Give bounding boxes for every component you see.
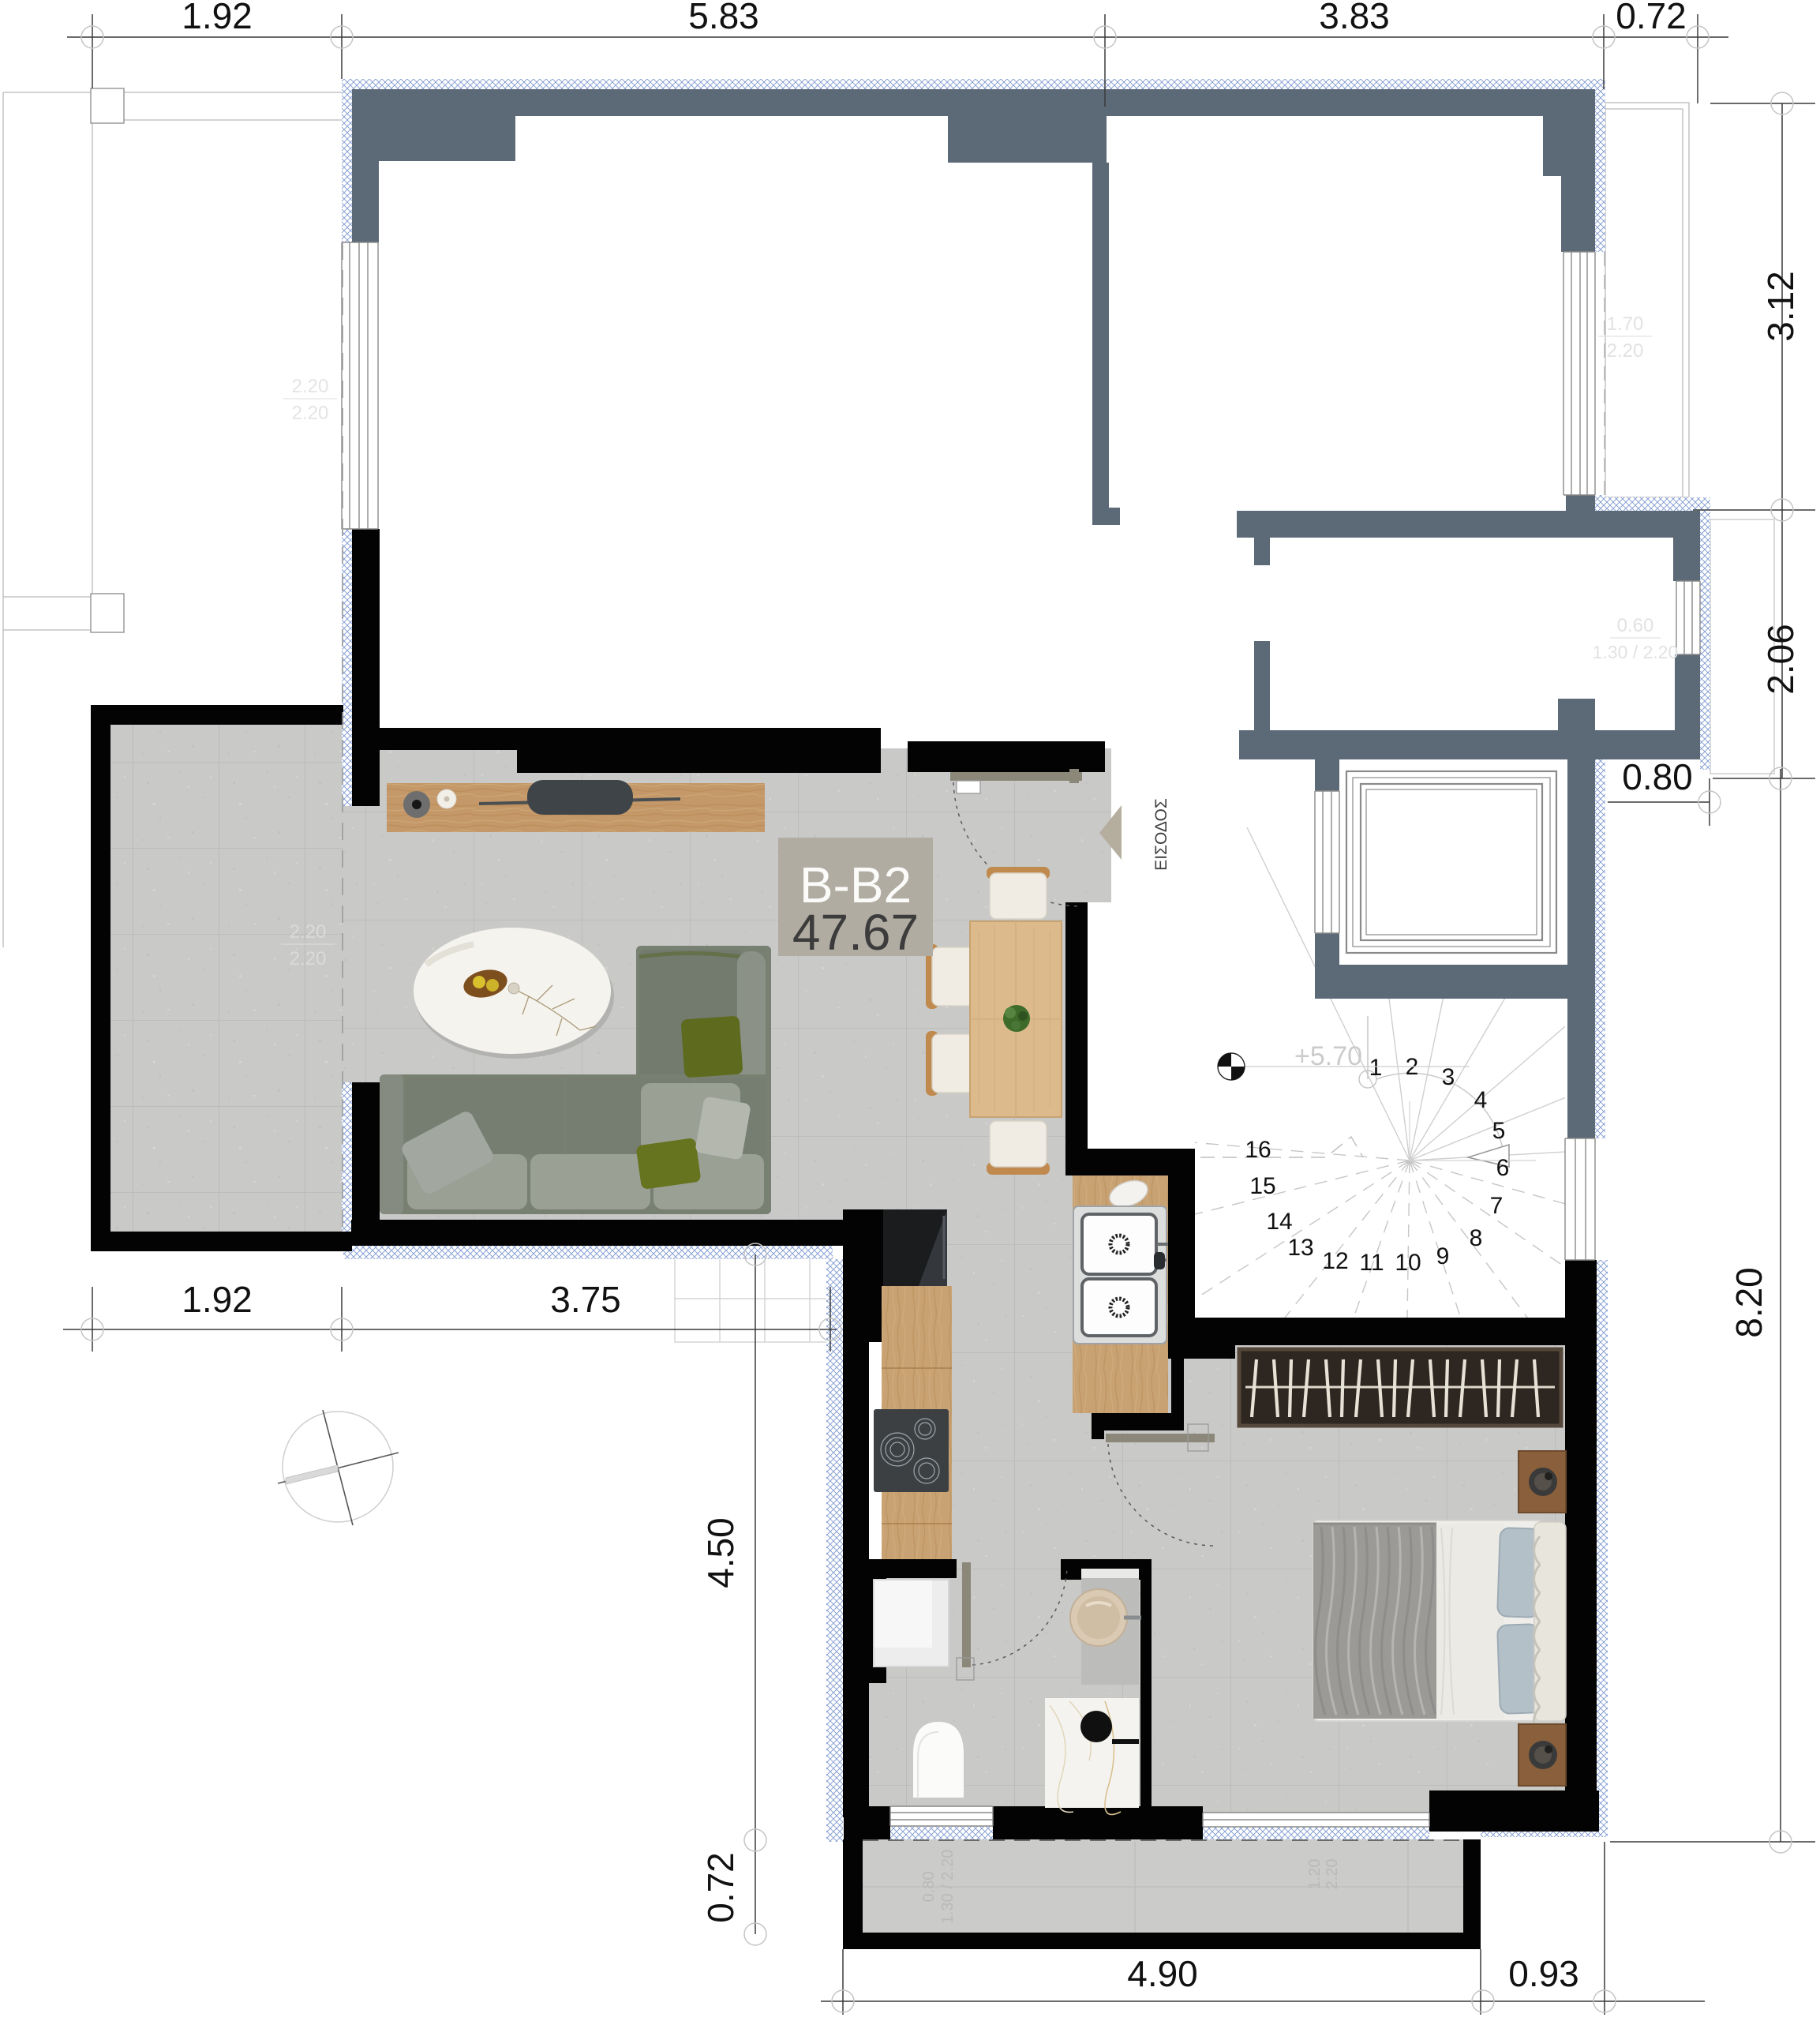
svg-text:15: 15 <box>1249 1173 1275 1199</box>
svg-text:2.20: 2.20 <box>1607 340 1644 362</box>
svg-text:12: 12 <box>1322 1248 1348 1274</box>
svg-text:1.92: 1.92 <box>182 1279 253 1320</box>
svg-text:2.20: 2.20 <box>292 403 329 424</box>
svg-text:0.80: 0.80 <box>920 1872 938 1903</box>
svg-text:2.20: 2.20 <box>292 376 329 397</box>
svg-text:5.83: 5.83 <box>688 0 759 36</box>
svg-text:0.93: 0.93 <box>1508 1953 1579 1994</box>
svg-text:3.83: 3.83 <box>1319 0 1390 36</box>
svg-text:4.90: 4.90 <box>1127 1953 1198 1994</box>
svg-text:1: 1 <box>1369 1055 1383 1081</box>
svg-text:2.20: 2.20 <box>290 948 327 969</box>
svg-text:8.20: 8.20 <box>1728 1267 1769 1338</box>
svg-text:0.80: 0.80 <box>1622 756 1693 797</box>
svg-text:1.92: 1.92 <box>182 0 253 36</box>
svg-text:1.20: 1.20 <box>1306 1859 1324 1890</box>
svg-text:13: 13 <box>1287 1235 1313 1261</box>
svg-text:11: 11 <box>1359 1250 1384 1276</box>
svg-text:1.70: 1.70 <box>1607 313 1644 335</box>
svg-text:5: 5 <box>1492 1118 1506 1144</box>
svg-text:47.67: 47.67 <box>792 904 919 961</box>
svg-text:0.72: 0.72 <box>1616 0 1687 36</box>
svg-text:2.20: 2.20 <box>290 921 327 943</box>
svg-text:4.50: 4.50 <box>700 1517 741 1588</box>
svg-text:2.20: 2.20 <box>1324 1859 1341 1890</box>
svg-text:3.75: 3.75 <box>550 1279 621 1320</box>
svg-text:9: 9 <box>1436 1243 1450 1269</box>
svg-text:1.30 / 2.20: 1.30 / 2.20 <box>1593 642 1679 662</box>
svg-text:8: 8 <box>1470 1225 1483 1251</box>
svg-text:7: 7 <box>1490 1193 1504 1219</box>
svg-text:14: 14 <box>1266 1209 1292 1235</box>
svg-text:0.60: 0.60 <box>1617 615 1654 636</box>
svg-text:2.06: 2.06 <box>1760 624 1801 695</box>
svg-text:+5.70: +5.70 <box>1294 1041 1362 1071</box>
svg-text:10: 10 <box>1395 1250 1421 1276</box>
svg-text:3.12: 3.12 <box>1760 271 1801 342</box>
svg-text:4: 4 <box>1474 1087 1488 1113</box>
svg-text:3: 3 <box>1442 1064 1455 1090</box>
svg-text:0.72: 0.72 <box>700 1852 741 1923</box>
svg-text:1.30 / 2.20: 1.30 / 2.20 <box>939 1850 957 1925</box>
svg-text:ΕΙΣΟΔΟΣ: ΕΙΣΟΔΟΣ <box>1152 798 1170 871</box>
svg-text:6: 6 <box>1496 1155 1510 1181</box>
svg-text:16: 16 <box>1245 1137 1271 1163</box>
